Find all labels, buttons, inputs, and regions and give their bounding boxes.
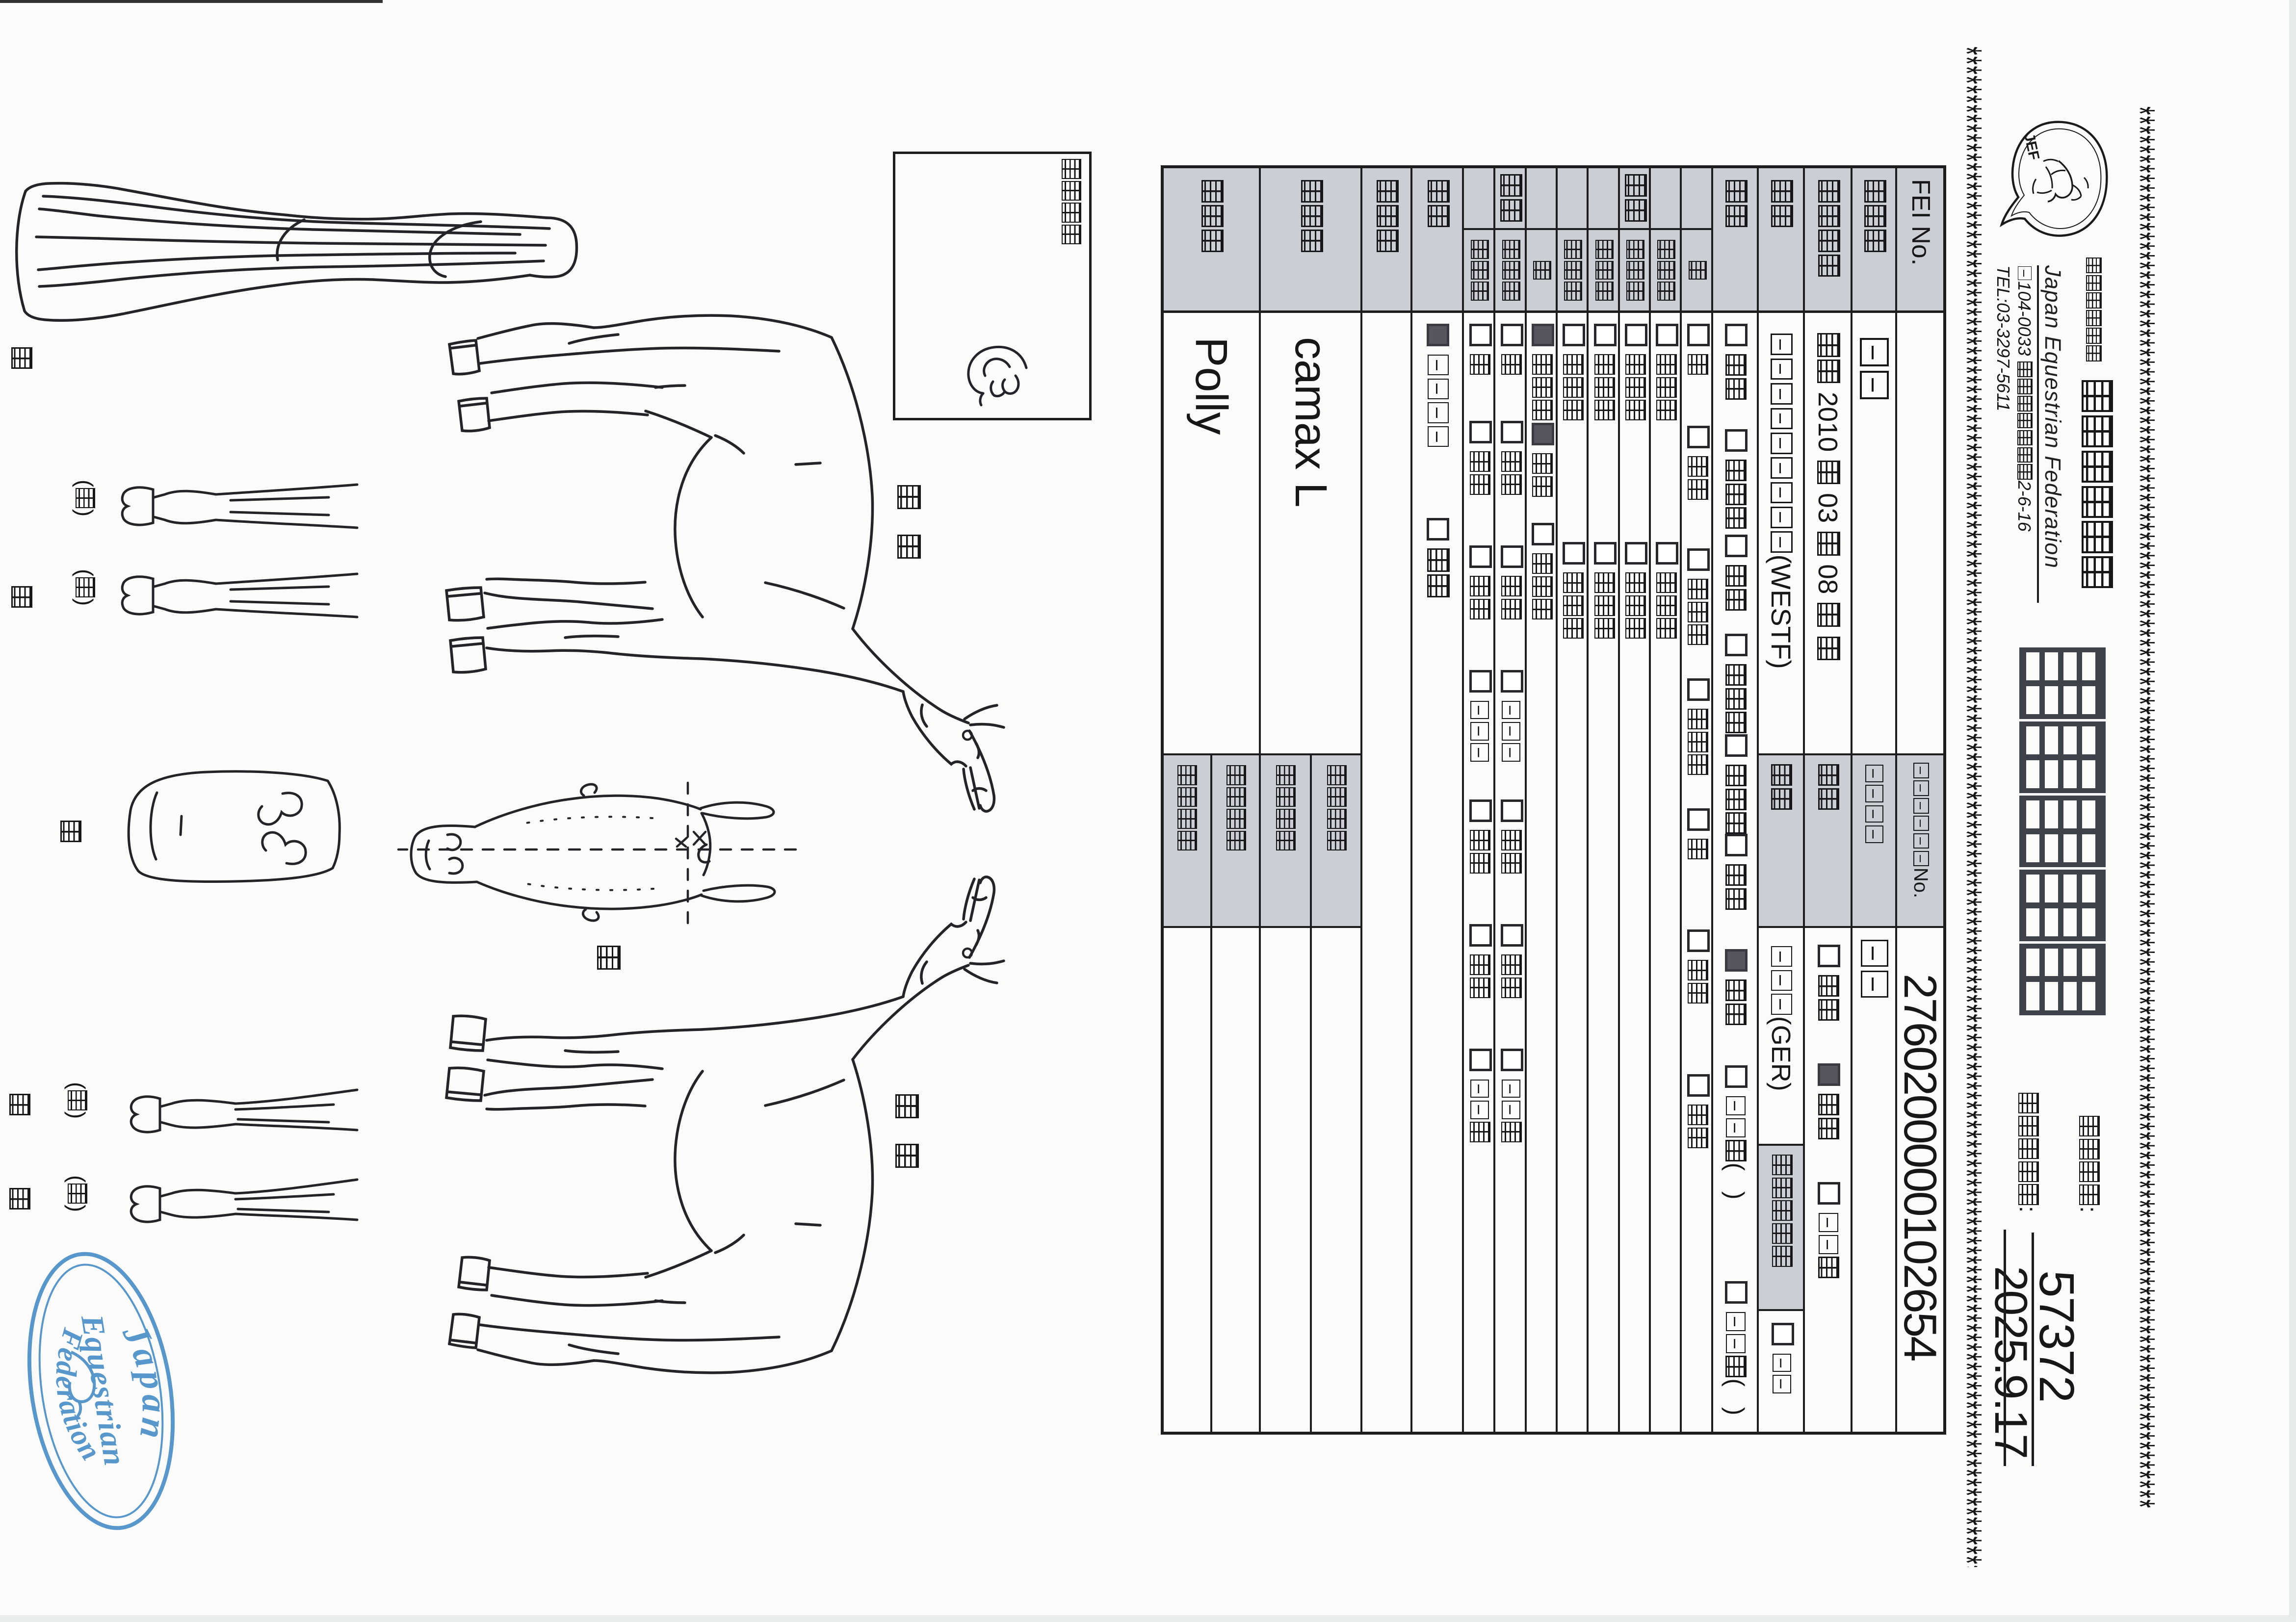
svg-text:JEF: JEF <box>2021 132 2042 162</box>
